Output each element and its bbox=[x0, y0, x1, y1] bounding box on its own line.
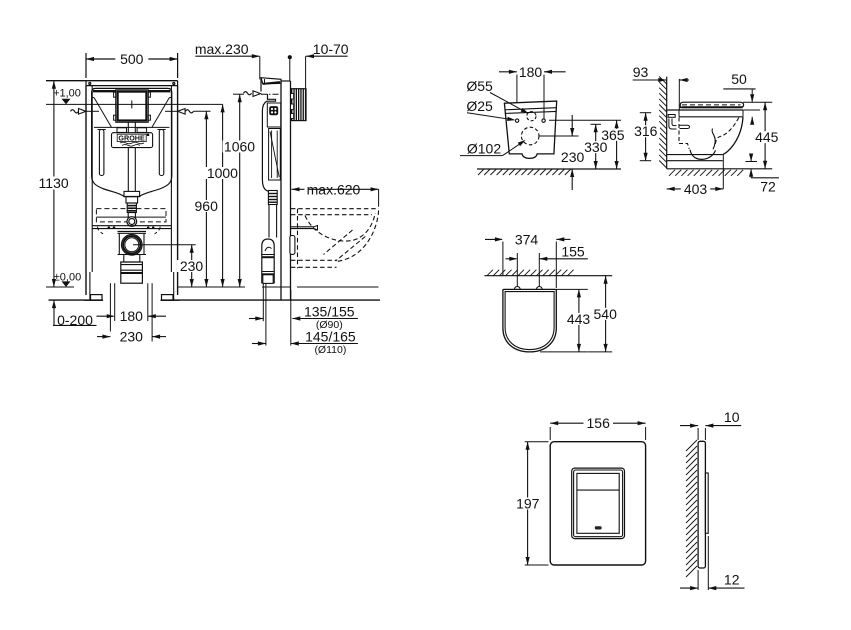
svg-text:Ø102: Ø102 bbox=[467, 140, 501, 156]
svg-text:10: 10 bbox=[724, 409, 740, 425]
svg-text:1130: 1130 bbox=[39, 175, 69, 191]
svg-text:230: 230 bbox=[120, 329, 144, 345]
svg-text:+1,00: +1,00 bbox=[53, 88, 81, 100]
svg-text:max.230: max.230 bbox=[195, 41, 249, 57]
svg-text:443: 443 bbox=[567, 311, 591, 327]
svg-text:365: 365 bbox=[601, 127, 625, 143]
svg-text:500: 500 bbox=[120, 51, 144, 67]
svg-text:72: 72 bbox=[760, 178, 776, 194]
svg-text:135/155: 135/155 bbox=[304, 303, 355, 319]
svg-text:50: 50 bbox=[731, 71, 747, 87]
svg-text:230: 230 bbox=[561, 149, 585, 165]
svg-text:145/165: 145/165 bbox=[305, 328, 356, 344]
svg-text:230: 230 bbox=[180, 258, 204, 274]
svg-text:1060: 1060 bbox=[224, 139, 255, 155]
svg-text:197: 197 bbox=[516, 496, 540, 512]
svg-text:156: 156 bbox=[587, 415, 611, 431]
svg-text:10-70: 10-70 bbox=[313, 41, 349, 57]
svg-text:540: 540 bbox=[594, 306, 618, 322]
svg-text:Ø55: Ø55 bbox=[466, 78, 493, 94]
svg-text:374: 374 bbox=[515, 231, 539, 247]
svg-text:180: 180 bbox=[519, 64, 543, 80]
svg-text:155: 155 bbox=[561, 243, 585, 259]
svg-text:316: 316 bbox=[634, 123, 658, 139]
svg-text:93: 93 bbox=[633, 64, 649, 80]
svg-text:(Ø110): (Ø110) bbox=[314, 344, 346, 356]
svg-text:403: 403 bbox=[684, 181, 708, 197]
svg-text:12: 12 bbox=[724, 572, 740, 588]
svg-text:1000: 1000 bbox=[207, 165, 238, 181]
svg-text:960: 960 bbox=[195, 198, 219, 214]
svg-text:180: 180 bbox=[120, 308, 144, 324]
svg-text:445: 445 bbox=[755, 129, 779, 145]
svg-text:Ø25: Ø25 bbox=[466, 98, 493, 114]
